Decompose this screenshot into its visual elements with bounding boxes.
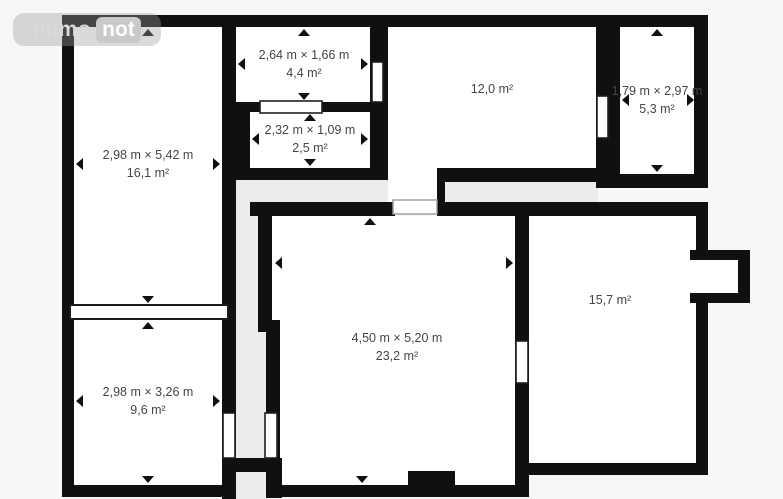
room-area: 5,3 m² [612, 100, 703, 118]
alcove-floor [696, 260, 738, 293]
wall-segment [696, 293, 708, 475]
wall-segment [690, 293, 748, 303]
wall-segment [437, 202, 708, 216]
wall-segment [268, 485, 528, 497]
door-marker [516, 341, 528, 383]
room-dimensions: 4,50 m × 5,20 m [352, 329, 443, 347]
wall-segment [596, 174, 708, 188]
room-area: 15,7 m² [589, 291, 631, 309]
wall-segment [522, 463, 708, 475]
room-dimensions: 1,79 m × 2,97 m [612, 82, 703, 100]
room-label-5-3: 1,79 m × 2,97 m 5,3 m² [612, 82, 703, 118]
room-label-15-7: 15,7 m² [589, 291, 631, 309]
room-label-16-1: 2,98 m × 5,42 m 16,1 m² [103, 146, 194, 182]
room-dimensions: 2,32 m × 1,09 m [265, 121, 356, 139]
room-area: 16,1 m² [103, 164, 194, 182]
room-area: 4,4 m² [259, 64, 350, 82]
room-area: 12,0 m² [471, 80, 513, 98]
room-label-2-5: 2,32 m × 1,09 m 2,5 m² [265, 121, 356, 157]
logo-text-not: not [96, 17, 141, 43]
wall-segment [258, 202, 272, 332]
wall-segment [266, 472, 282, 498]
door-marker [223, 413, 235, 458]
door-marker [393, 200, 437, 214]
exterior-pocket [236, 472, 266, 499]
room-dimensions: 2,98 m × 5,42 m [103, 146, 194, 164]
wall-segment [437, 168, 598, 182]
door-marker [260, 101, 322, 113]
wall-segment [236, 168, 388, 180]
room-dimensions: 2,64 m × 1,66 m [259, 46, 350, 64]
wall-segment [437, 180, 445, 204]
room-label-12-0: 12,0 m² [471, 80, 513, 98]
door-marker [597, 96, 608, 138]
immonot-logo: immo not [13, 13, 161, 46]
floor-plan-page: 2,98 m × 5,42 m 16,1 m² 2,98 m × 3,26 m … [0, 0, 783, 499]
room-area: 2,5 m² [265, 139, 356, 157]
room-area: 23,2 m² [352, 347, 443, 365]
wall-segment [258, 320, 280, 332]
room-floor-15-7 [529, 216, 696, 463]
room-dimensions: 2,98 m × 3,26 m [103, 383, 194, 401]
wall-segment [408, 471, 455, 486]
wall-segment [62, 15, 74, 497]
glass-partition-marker [70, 305, 228, 319]
room-area: 9,6 m² [103, 401, 194, 419]
room-label-23-2: 4,50 m × 5,20 m 23,2 m² [352, 329, 443, 365]
wall-segment [222, 458, 282, 472]
floor-plan-drawing [0, 0, 783, 499]
room-opening-12-0 [388, 168, 437, 204]
window-marker [372, 62, 383, 102]
logo-text-immo: immo [33, 18, 91, 42]
wall-segment [62, 485, 236, 497]
door-marker [265, 413, 277, 458]
room-label-9-6: 2,98 m × 3,26 m 9,6 m² [103, 383, 194, 419]
room-label-4-4: 2,64 m × 1,66 m 4,4 m² [259, 46, 350, 82]
